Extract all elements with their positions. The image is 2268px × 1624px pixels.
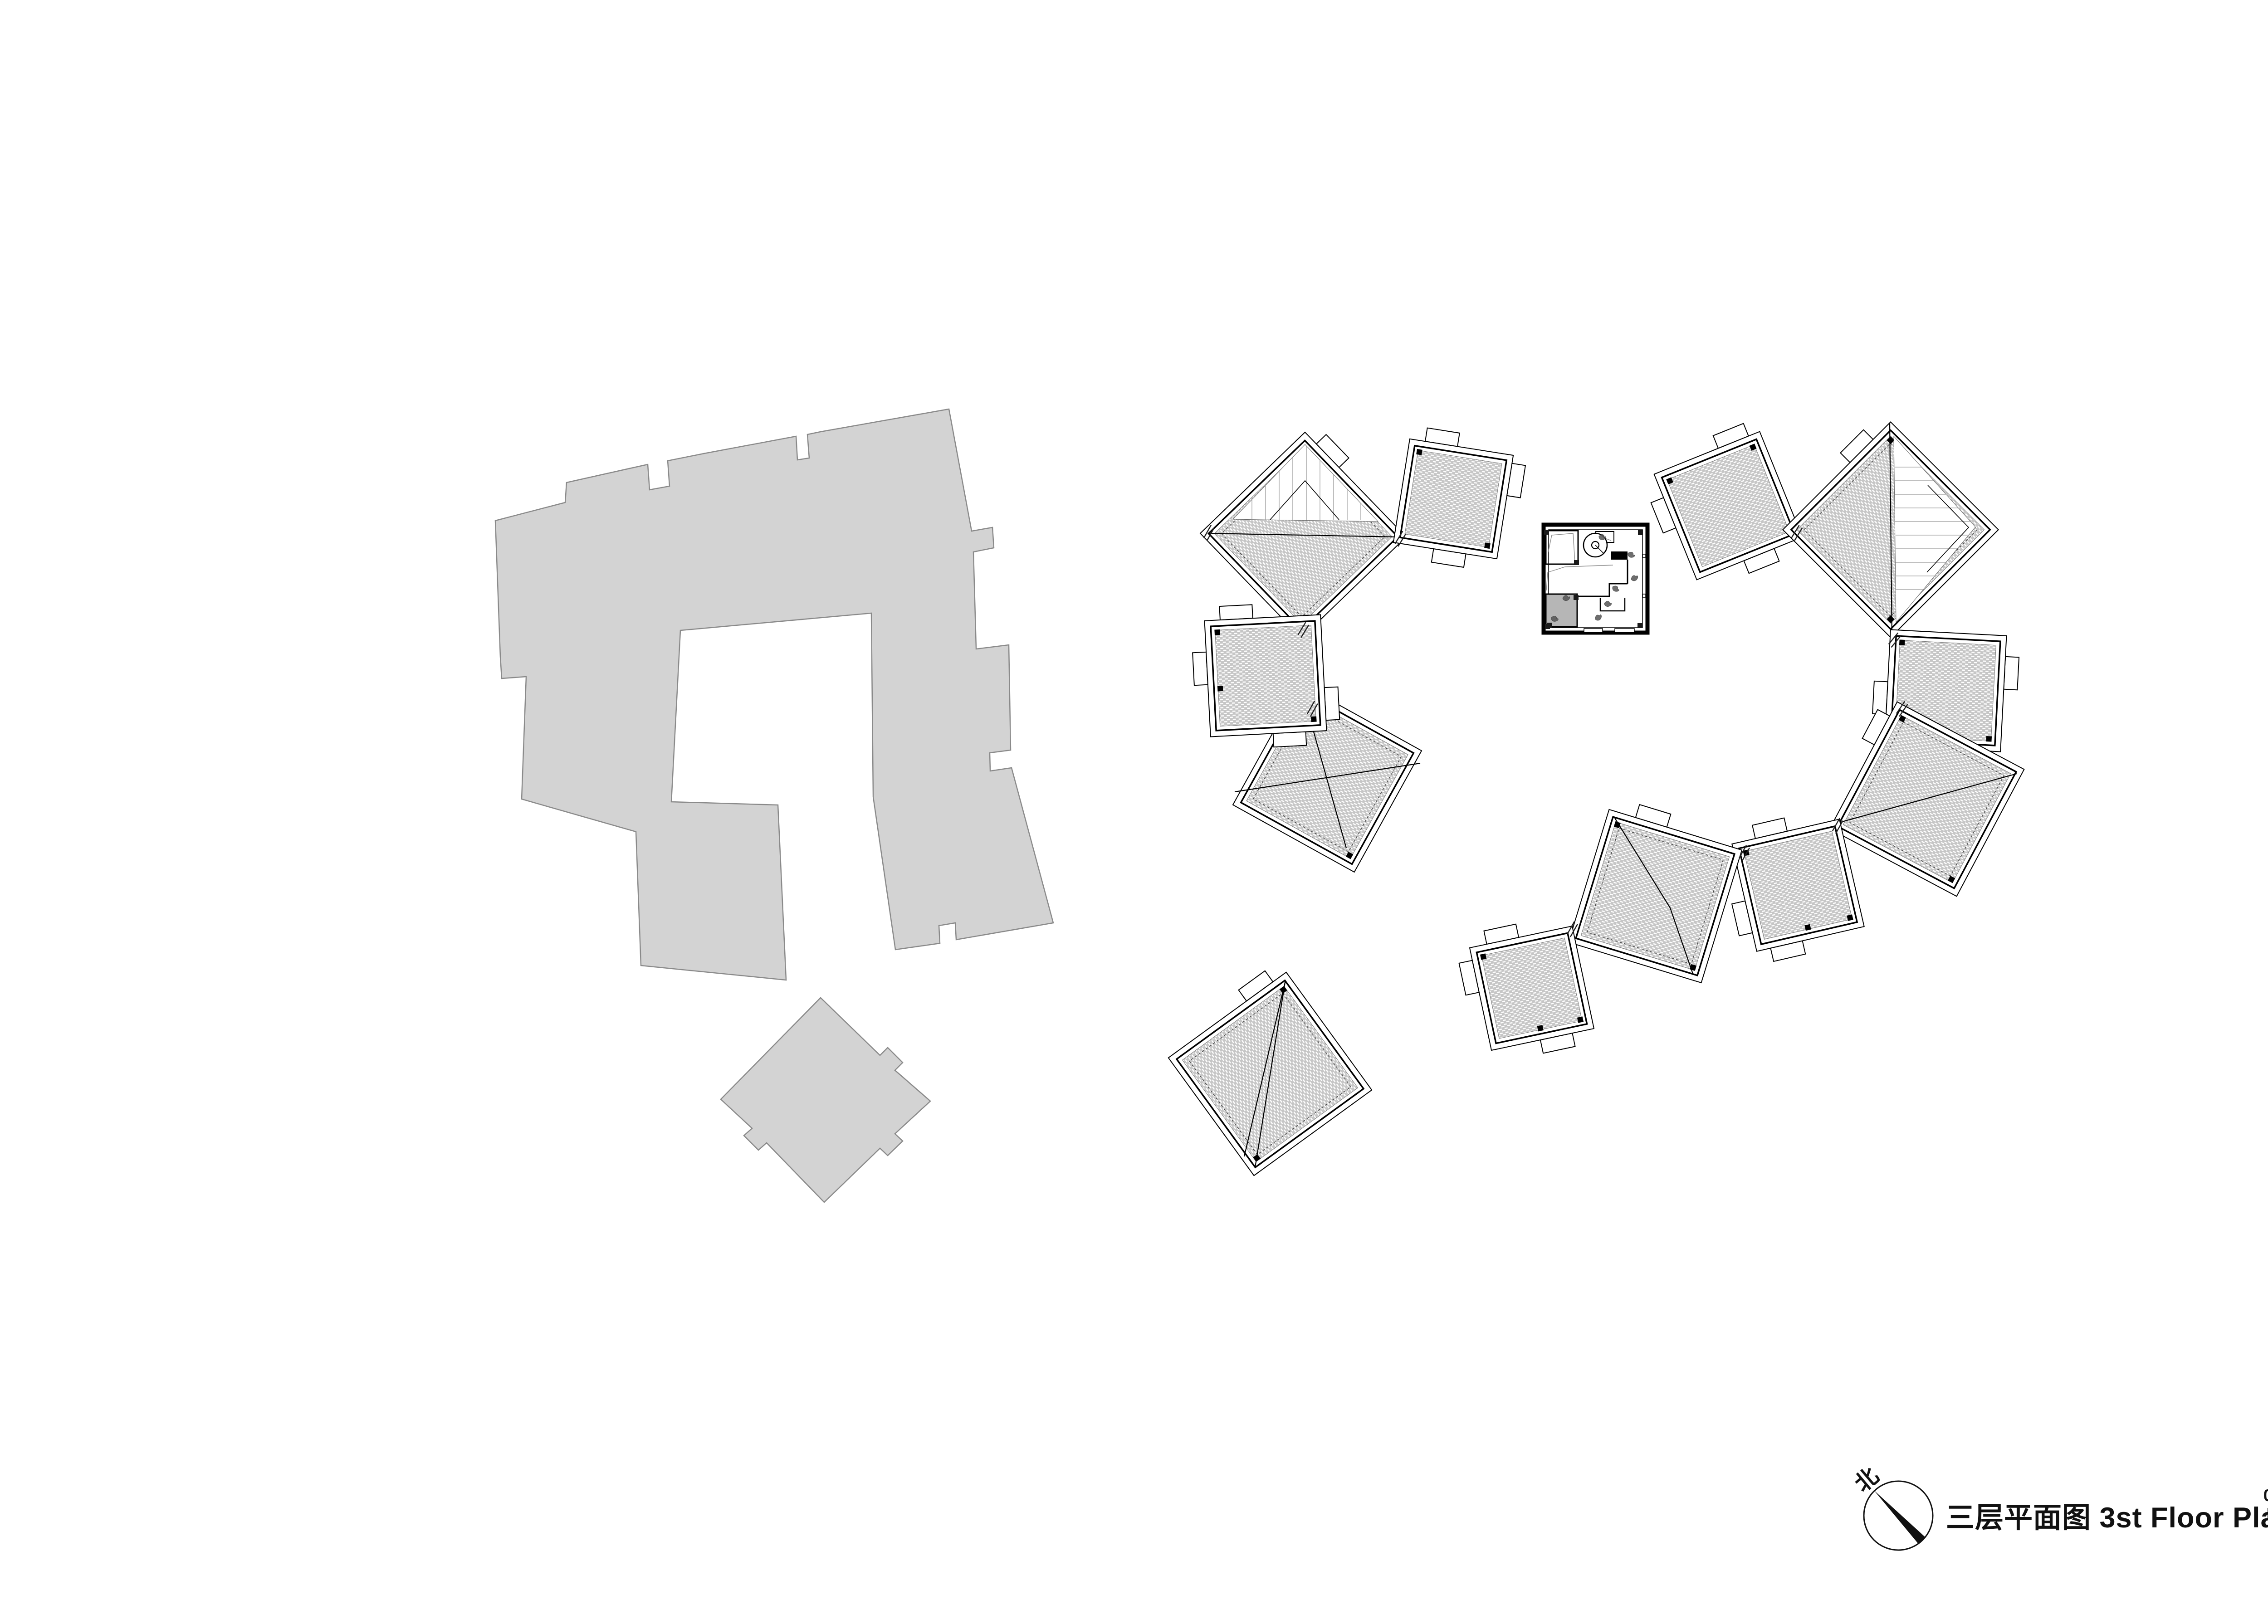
unit-door xyxy=(1615,629,1634,632)
plan-title-zh: 三层平面图 xyxy=(1946,1502,2091,1534)
site-plan-canvas: 北 三层平面图 3st Floor Plan 0 1 2 5 M xyxy=(0,0,2268,1624)
floor-plan-sheet: 北 三层平面图 3st Floor Plan 0 1 2 5 M xyxy=(0,0,2268,1624)
roof-corner-mark xyxy=(1480,953,1486,960)
unit-room xyxy=(1611,551,1628,560)
north-arrow: 北 xyxy=(1850,1463,1933,1550)
roof-corner-mark xyxy=(1217,686,1223,692)
roof-tab xyxy=(1193,652,1208,685)
plan-title-en: 3st Floor Plan xyxy=(2091,1502,2268,1534)
scale-tick-0: 0 xyxy=(2263,1486,2268,1505)
roof-corner-mark xyxy=(1214,629,1220,635)
pavilion-3-roof xyxy=(1637,419,1808,598)
unit-column xyxy=(1544,530,1549,535)
roof-corner-mark xyxy=(1311,716,1317,722)
north-label: 北 xyxy=(1850,1463,1883,1497)
unit-column xyxy=(1637,623,1642,628)
roof-corner-mark xyxy=(1537,1025,1544,1031)
unit-room xyxy=(1546,594,1577,627)
roof-corner-mark xyxy=(1416,449,1422,455)
unit-door xyxy=(1584,629,1603,632)
skylight-panel xyxy=(1894,436,1975,622)
annex-diamond-mass xyxy=(721,998,930,1202)
roof-hatch xyxy=(1215,625,1316,727)
pavilion-11-roof xyxy=(1190,600,1341,751)
main-block-mass xyxy=(495,409,1053,980)
north-arrow-needle-icon xyxy=(1874,1490,1926,1544)
gray-building-masses xyxy=(495,409,1053,1202)
pavilion-4-skylight xyxy=(1894,436,1975,622)
pavilion-12-roof xyxy=(1160,961,1372,1176)
roof-tab xyxy=(1325,687,1340,720)
unit-column xyxy=(1547,623,1552,628)
roof-corner-mark xyxy=(1577,1016,1584,1023)
pavilion-8-roof xyxy=(1569,796,1746,983)
roof-hatch xyxy=(1405,450,1502,547)
pavilion-2-roof xyxy=(1391,425,1529,574)
unit-column xyxy=(1638,530,1643,535)
title-block: 北 三层平面图 3st Floor Plan 0 1 2 5 M xyxy=(1850,1463,2268,1550)
roof-corner-mark xyxy=(1899,639,1905,645)
unit-column xyxy=(1574,595,1579,600)
plan-title: 三层平面图 3st Floor Plan xyxy=(1946,1502,2268,1534)
unit-floor-plan xyxy=(1544,525,1647,633)
roof-corner-mark xyxy=(1986,736,1992,742)
unit-column xyxy=(1574,560,1579,565)
roof-tab xyxy=(1219,605,1252,620)
roof-tab xyxy=(1872,681,1888,714)
roof-corner-mark xyxy=(1484,542,1491,549)
roof-tab xyxy=(2004,657,2019,690)
roof-tab xyxy=(1273,732,1306,747)
roof-hatch xyxy=(1481,938,1582,1039)
